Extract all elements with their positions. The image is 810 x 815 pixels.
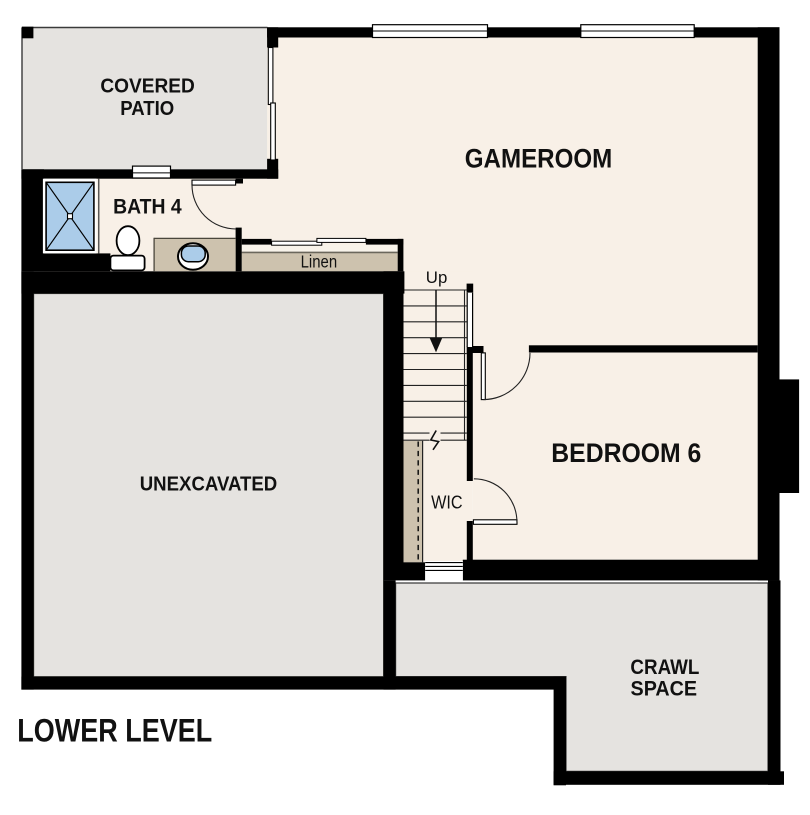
svg-text:Linen: Linen — [301, 251, 338, 271]
svg-text:BATH 4: BATH 4 — [113, 193, 182, 218]
svg-text:PATIO: PATIO — [120, 98, 174, 120]
svg-text:COVERED: COVERED — [100, 76, 195, 98]
svg-text:Up: Up — [426, 268, 448, 287]
svg-text:CRAWL: CRAWL — [630, 656, 699, 679]
svg-text:SPACE: SPACE — [631, 678, 698, 701]
svg-text:LOWER LEVEL: LOWER LEVEL — [17, 713, 212, 749]
svg-text:GAMEROOM: GAMEROOM — [465, 144, 613, 174]
svg-text:UNEXCAVATED: UNEXCAVATED — [140, 473, 278, 495]
svg-text:BEDROOM 6: BEDROOM 6 — [551, 438, 701, 468]
svg-text:WIC: WIC — [431, 492, 463, 512]
